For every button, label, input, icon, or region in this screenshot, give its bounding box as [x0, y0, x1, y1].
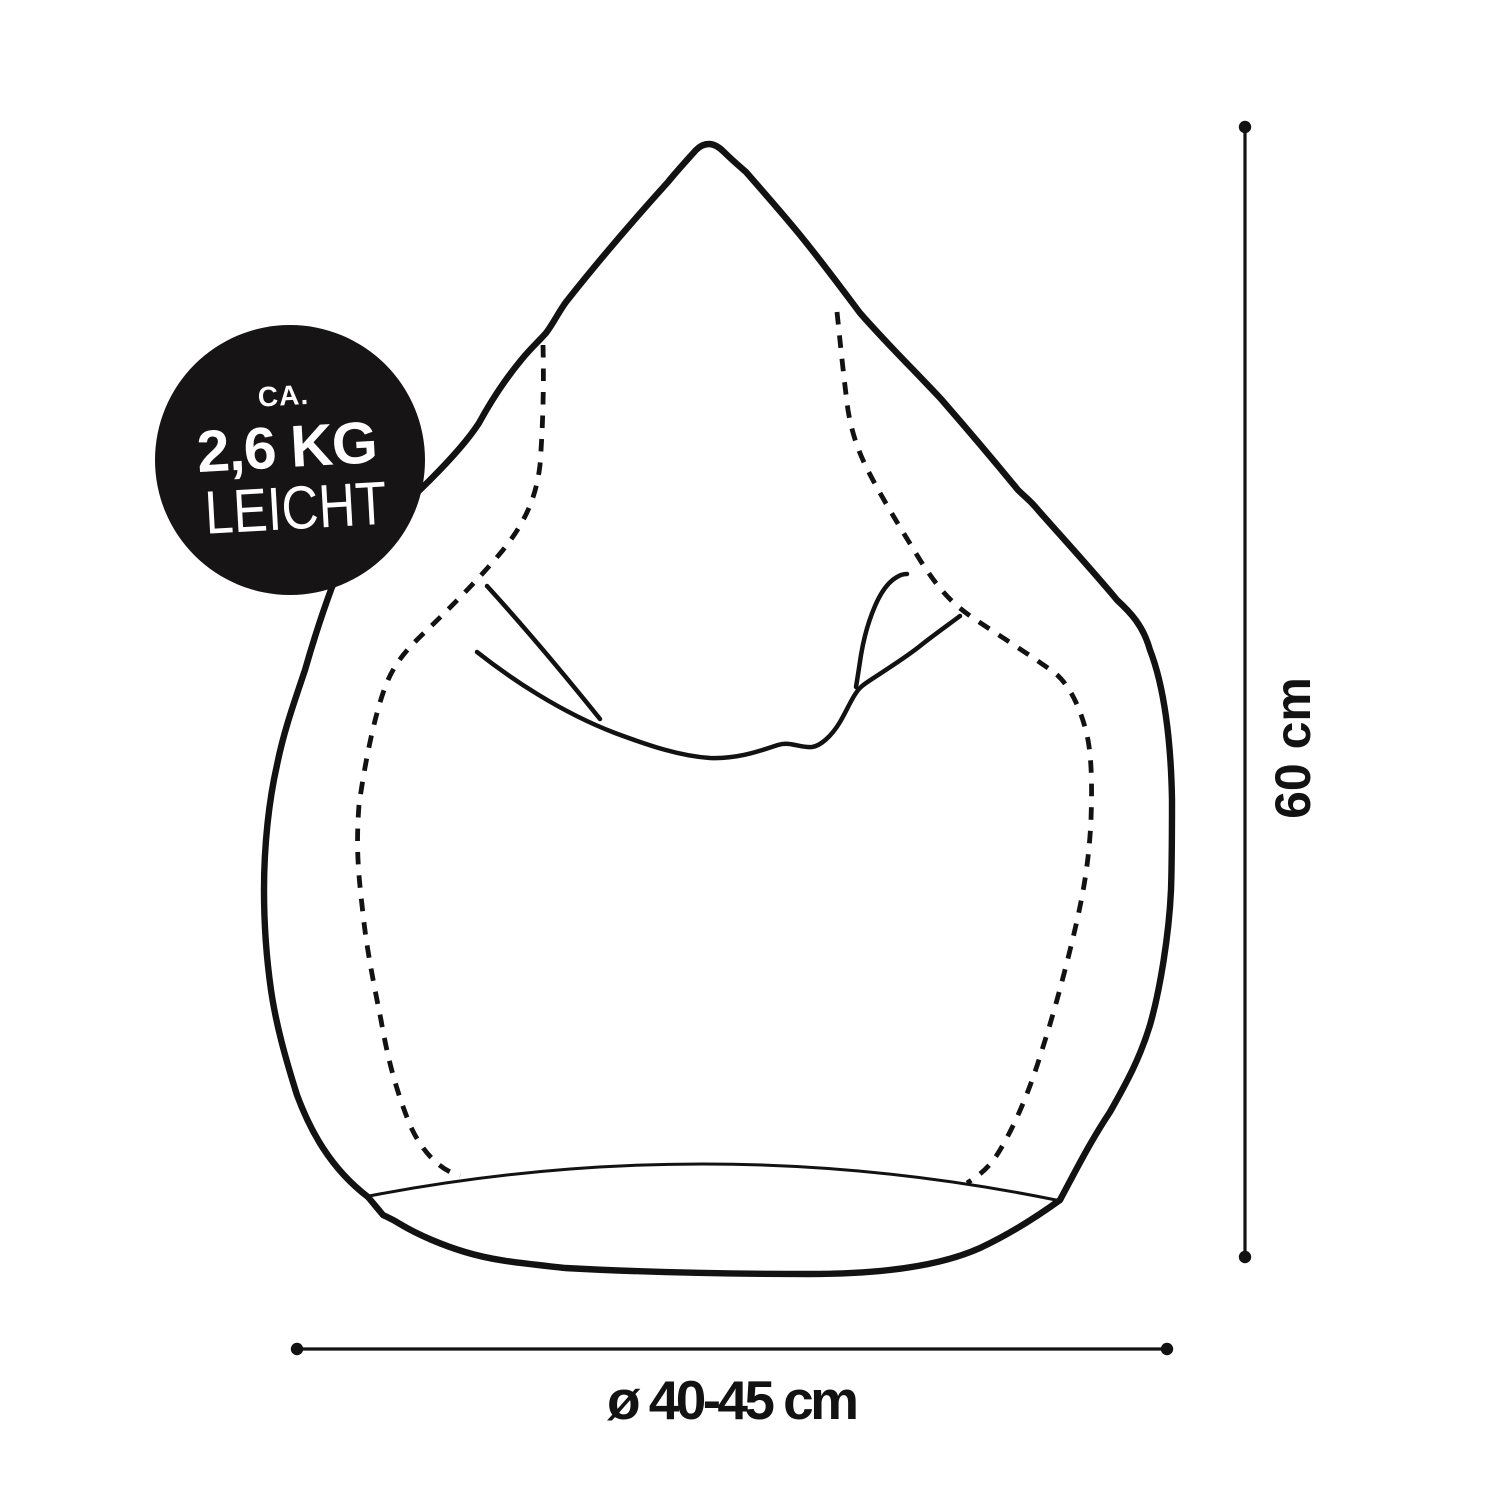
svg-text:CA.: CA.	[257, 379, 310, 413]
svg-text:60 cm: 60 cm	[1265, 677, 1321, 819]
svg-text:ø 40-45 cm: ø 40-45 cm	[607, 1369, 859, 1431]
svg-text:LEICHT: LEICHT	[203, 469, 389, 547]
